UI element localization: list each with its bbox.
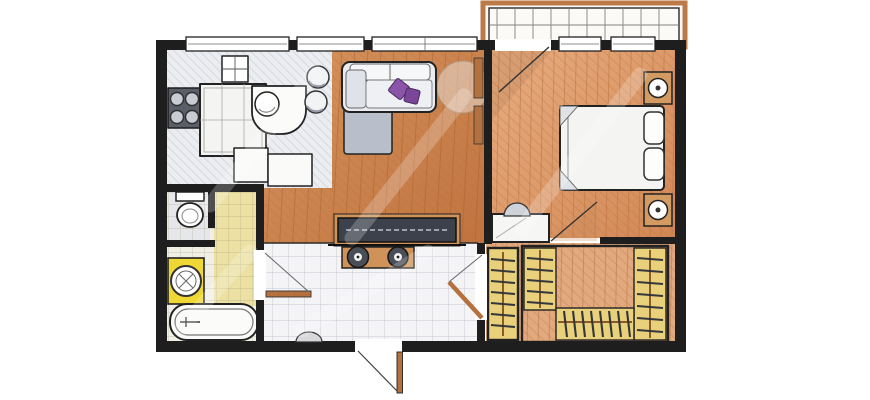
shelf-strip-1: [474, 58, 483, 98]
apartment-floor-plan: [0, 0, 870, 400]
wall-living-bedroom: [484, 50, 492, 244]
entrance-door-swing: [358, 351, 397, 391]
wall-bedroom-dressing: [600, 237, 676, 244]
bathroom-door-leaf: [266, 291, 311, 297]
kitchen-counter-low-2: [268, 154, 312, 186]
toilet-tank: [176, 192, 204, 201]
wall-right: [675, 40, 686, 352]
wall-bottom: [156, 341, 686, 352]
wall-wc-horizontal: [158, 240, 215, 247]
balcony-door-opening: [495, 39, 551, 51]
bed-pillow-2: [644, 148, 664, 180]
entrance-door-leaf: [397, 352, 403, 393]
bed-pillow-1: [644, 112, 664, 144]
throw-pillow-2: [404, 88, 421, 105]
shelf-strip-2: [474, 106, 483, 144]
wall-left: [156, 40, 167, 352]
sofa-chaise: [344, 108, 392, 154]
floor-plan-canvas: [0, 0, 870, 400]
